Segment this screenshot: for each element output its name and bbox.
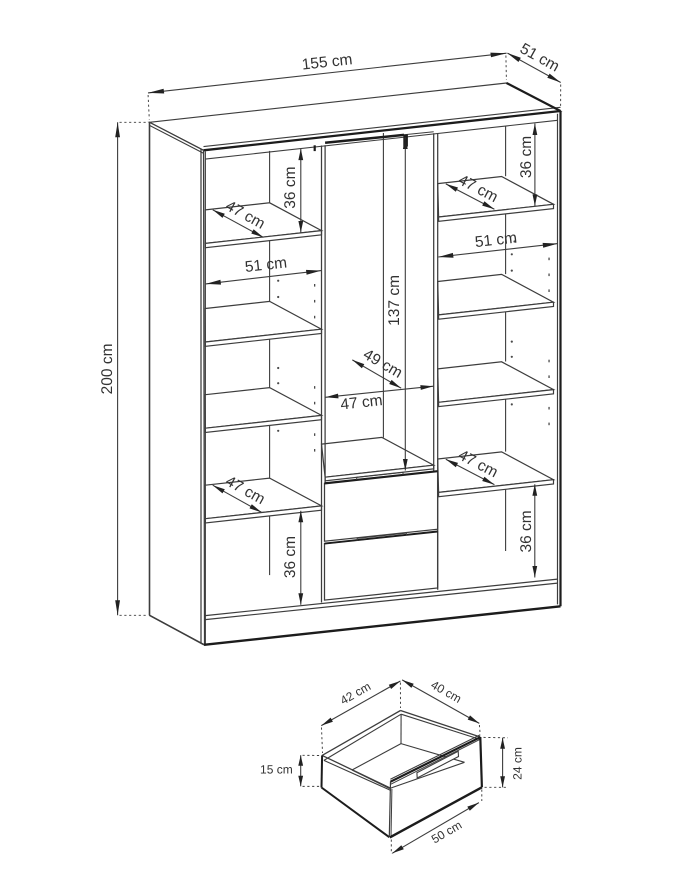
svg-text:51 cm: 51 cm: [244, 254, 288, 276]
svg-text:36 cm: 36 cm: [518, 136, 535, 178]
svg-text:15 cm: 15 cm: [260, 762, 293, 776]
svg-text:200 cm: 200 cm: [99, 343, 116, 394]
svg-text:24 cm: 24 cm: [511, 747, 525, 780]
svg-text:40 cm: 40 cm: [429, 678, 464, 706]
svg-text:155 cm: 155 cm: [301, 51, 353, 73]
svg-text:36 cm: 36 cm: [518, 510, 535, 552]
svg-text:51 cm: 51 cm: [474, 230, 518, 252]
svg-text:49 cm: 49 cm: [360, 346, 405, 382]
svg-text:137 cm: 137 cm: [386, 275, 403, 326]
svg-text:36 cm: 36 cm: [282, 166, 299, 208]
svg-text:42 cm: 42 cm: [338, 679, 373, 707]
svg-text:36 cm: 36 cm: [282, 536, 299, 578]
svg-text:47 cm: 47 cm: [340, 392, 384, 414]
